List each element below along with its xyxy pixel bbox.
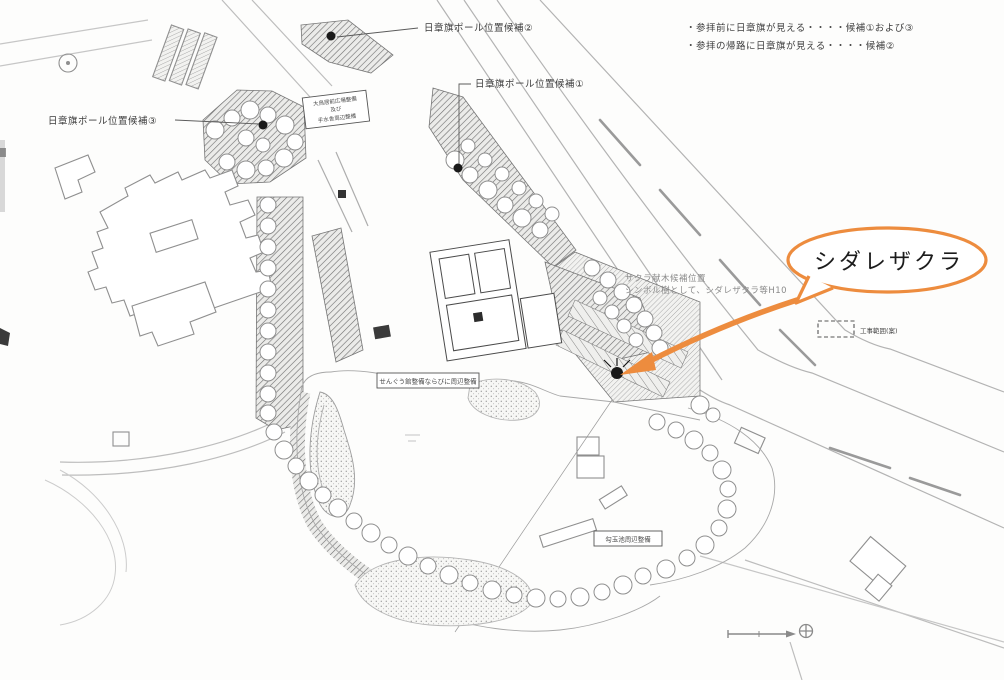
sakura-note-line-2: シンボル樹として、シダレザクラ等H10 [625, 285, 787, 296]
area-box-sengukan-label: せんぐう館整備ならびに周辺整備 [379, 377, 477, 386]
legend-swatch-dashed [818, 321, 854, 337]
flag-pole-2-label: 日章旗ポール位置候補② [424, 22, 533, 34]
small-structure [113, 432, 129, 446]
sakura-note-line-1: サクラ献木候補位置 [625, 273, 706, 284]
flag-pole-2-marker [327, 32, 336, 41]
scan-artifacts [0, 140, 10, 346]
site-plan-drawing: 日章旗ポール位置候補② 日章旗ポール位置候補① 日章旗ポール位置候補③ ・参拝前… [0, 0, 1004, 680]
area-box-magatama: 勾玉池周辺整備 [594, 531, 662, 546]
building-se [842, 537, 907, 602]
buildings [55, 21, 907, 601]
contours [45, 470, 126, 625]
flag-pole-3-label: 日章旗ポール位置候補③ [48, 115, 157, 127]
note-line-2: ・参拝の帰路に日章旗が見える・・・・候補② [686, 40, 895, 52]
scale-arrow [786, 631, 796, 638]
flag-pole-1-marker [454, 164, 463, 173]
north-benchmark-icon [800, 625, 813, 638]
note-line-1: ・参拝前に日章旗が見える・・・・候補①および③ [686, 22, 914, 34]
area-box-otorii: 大鳥居前広場整備 及び 手水舎周辺整備 [302, 90, 369, 129]
grove-north [301, 20, 393, 73]
dark-outbuilding [373, 325, 391, 340]
small-building-nw [55, 155, 95, 199]
area-box-sengukan: せんぐう館整備ならびに周辺整備 [377, 373, 479, 388]
area-box-magatama-label: 勾玉池周辺整備 [605, 535, 651, 544]
scale-bar [728, 630, 796, 638]
callout-label: シダレザクラ [814, 250, 964, 275]
legend-construction-label: 工事範囲(案) [860, 326, 898, 335]
west-approach-strip [312, 228, 363, 362]
torii-base [338, 190, 346, 198]
site-plan-scan: 日章旗ポール位置候補② 日章旗ポール位置候補① 日章旗ポール位置候補③ ・参拝前… [0, 0, 1004, 680]
legend: 工事範囲(案) [818, 321, 898, 337]
flag-pole-3-marker [259, 121, 268, 130]
shed-row [153, 21, 217, 93]
flag-pole-1-label: 日章旗ポール位置候補① [475, 78, 584, 90]
